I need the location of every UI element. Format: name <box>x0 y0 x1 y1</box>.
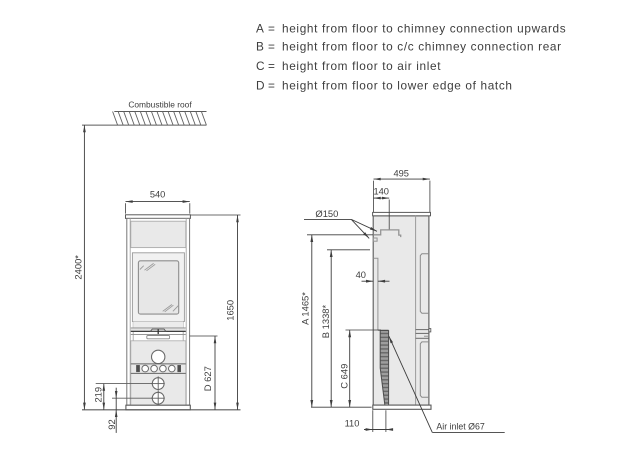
svg-text:height from floor to air inlet: height from floor to air inlet <box>282 59 441 73</box>
svg-text:1650: 1650 <box>224 300 235 321</box>
svg-text:D 627: D 627 <box>202 366 213 391</box>
svg-text:height from floor to c/c chimn: height from floor to c/c chimney connect… <box>282 39 562 53</box>
svg-text:495: 495 <box>393 169 409 179</box>
svg-text:40: 40 <box>356 270 366 280</box>
svg-text:height from floor to chimney c: height from floor to chimney connection … <box>282 22 566 36</box>
svg-text:219: 219 <box>93 387 104 403</box>
svg-text:D: D <box>256 79 265 93</box>
svg-text:A 1465*: A 1465* <box>300 292 311 325</box>
svg-text:110: 110 <box>345 418 360 428</box>
svg-text:=: = <box>268 59 275 73</box>
svg-text:B 1338*: B 1338* <box>320 304 331 338</box>
svg-text:=: = <box>268 22 275 36</box>
svg-text:140: 140 <box>373 187 389 197</box>
svg-text:C: C <box>256 59 265 73</box>
svg-text:C 649: C 649 <box>339 364 350 389</box>
svg-text:Combustible roof: Combustible roof <box>128 99 192 109</box>
svg-text:540: 540 <box>150 189 166 199</box>
svg-text:Ø150: Ø150 <box>315 208 338 219</box>
svg-text:B: B <box>256 39 264 53</box>
svg-text:=: = <box>268 39 275 53</box>
svg-text:height from floor to lower edg: height from floor to lower edge of hatch <box>282 79 513 93</box>
svg-text:=: = <box>268 79 275 93</box>
svg-text:A: A <box>256 22 264 36</box>
svg-text:92: 92 <box>106 419 117 429</box>
svg-text:Air inlet Ø67: Air inlet Ø67 <box>436 422 485 432</box>
svg-text:2400*: 2400* <box>73 255 84 280</box>
